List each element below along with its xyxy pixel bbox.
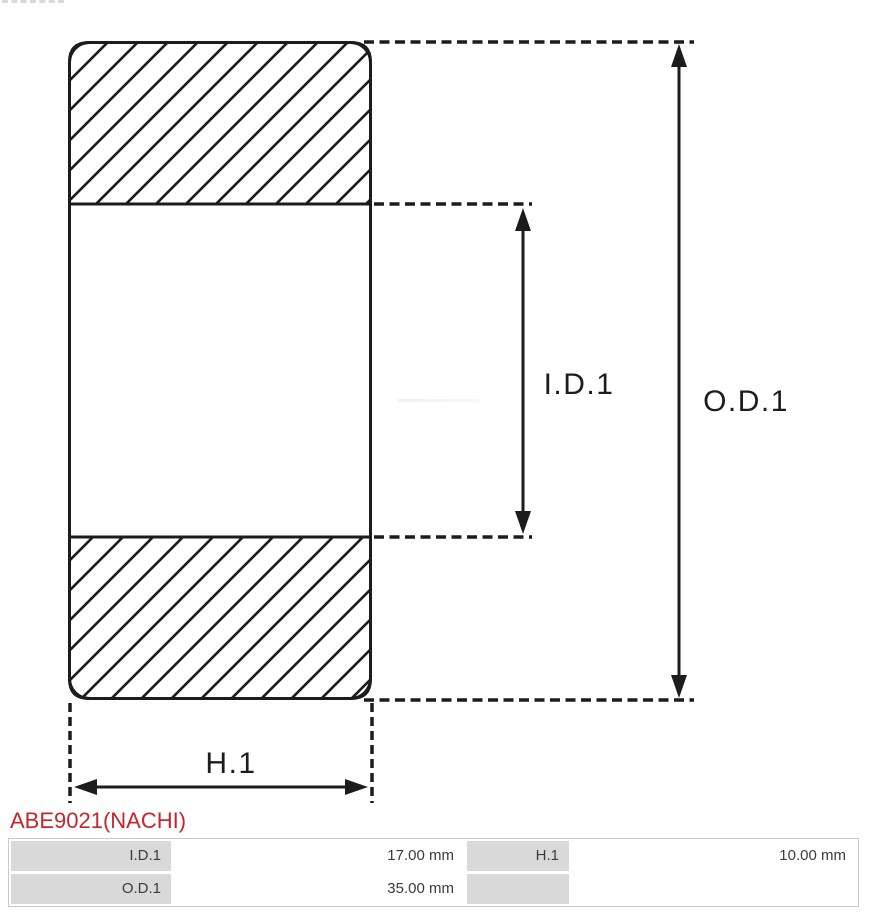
h-dimension-arrow: [74, 779, 368, 795]
od-dimension-label: O.D.1: [703, 385, 789, 419]
spec-value-h: 10.00 mm: [572, 841, 856, 871]
hatch-bottom-section: [70, 537, 371, 699]
spec-label-id: I.D.1: [11, 841, 171, 871]
od-dimension-arrow: [671, 44, 687, 698]
id-extension-lines: [374, 204, 532, 537]
part-number-link[interactable]: ABE9021(NACHI): [10, 808, 186, 834]
hatch-top-section: [70, 43, 371, 205]
id-dimension-arrow: [515, 208, 531, 534]
bearing-diagram: I.D.1 O.D.1 H.1: [0, 0, 871, 808]
spec-label-empty: [467, 874, 569, 904]
spec-value-id: 17.00 mm: [174, 841, 464, 871]
watermark-line: [398, 399, 482, 402]
h-dimension-label: H.1: [205, 747, 256, 781]
spec-label-h: H.1: [467, 841, 569, 871]
spec-table: I.D.1 17.00 mm H.1 10.00 mm O.D.1 35.00 …: [8, 838, 859, 907]
od-extension-lines: [364, 42, 694, 700]
spec-value-od: 35.00 mm: [174, 874, 464, 904]
spec-value-empty: [572, 874, 856, 904]
spec-label-od: O.D.1: [11, 874, 171, 904]
id-dimension-label: I.D.1: [544, 368, 615, 402]
